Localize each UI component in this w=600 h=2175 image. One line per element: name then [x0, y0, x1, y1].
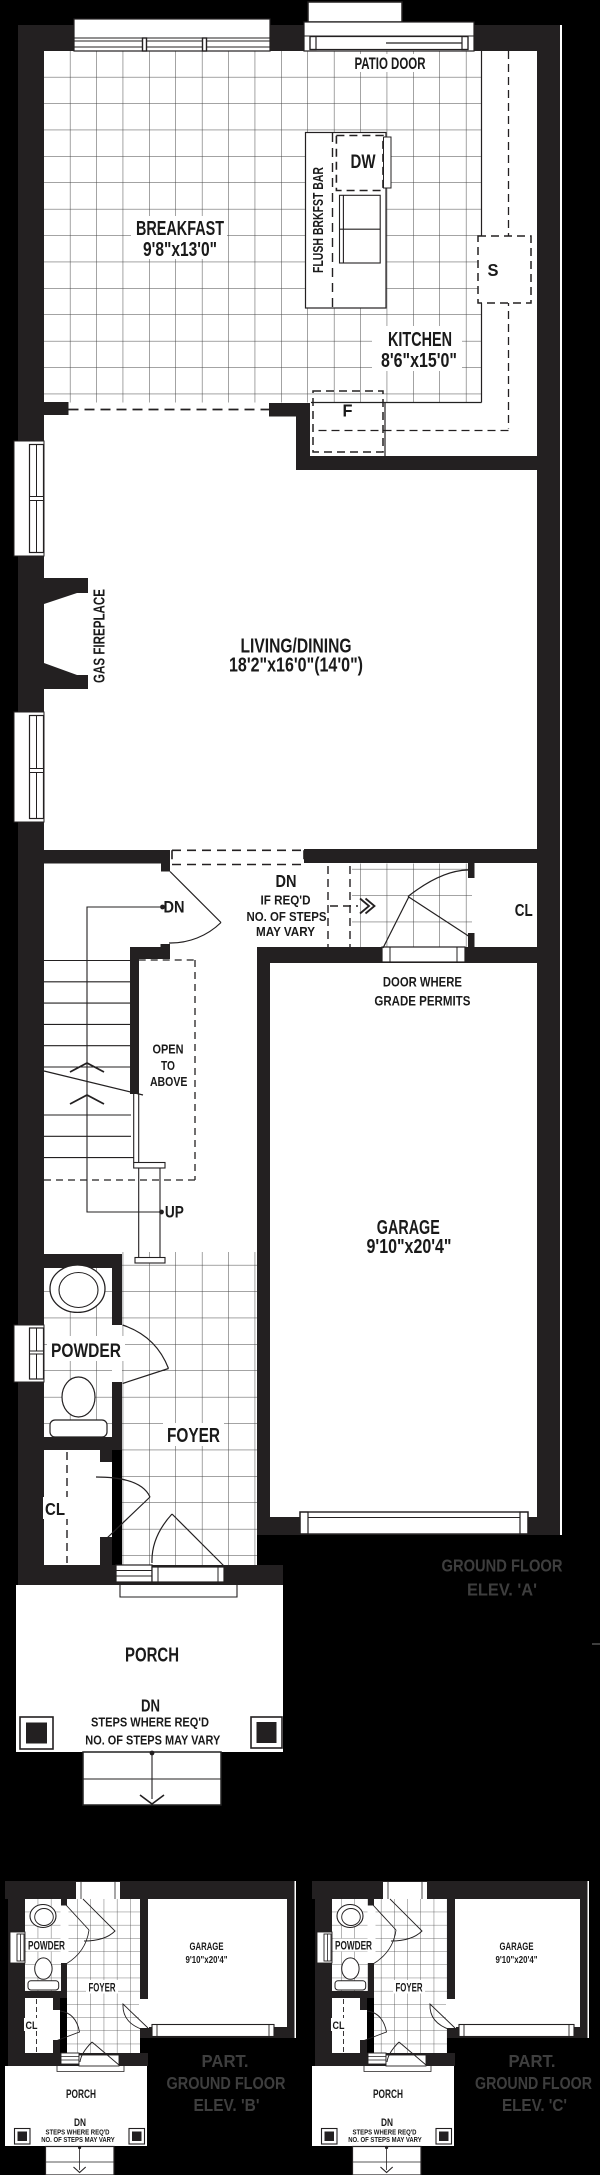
svg-text:9'10"x20'4": 9'10"x20'4"	[186, 1954, 228, 1966]
svg-text:ABOVE: ABOVE	[150, 1074, 188, 1089]
svg-text:GARAGE: GARAGE	[190, 1941, 224, 1953]
svg-text:9'10"x20'4": 9'10"x20'4"	[367, 1236, 452, 1258]
svg-text:9'8"x13'0": 9'8"x13'0"	[143, 239, 217, 261]
svg-text:STEPS WHERE REQ'D: STEPS WHERE REQ'D	[91, 1715, 209, 1730]
svg-text:CL: CL	[333, 2020, 345, 2032]
svg-text:DN: DN	[276, 871, 297, 891]
svg-text:POWDER: POWDER	[335, 1939, 372, 1953]
svg-text:DW: DW	[351, 152, 376, 173]
svg-text:18'2"x16'0"(14'0"): 18'2"x16'0"(14'0")	[229, 655, 363, 677]
svg-text:GRADE PERMITS: GRADE PERMITS	[374, 992, 470, 1008]
svg-text:ELEV. 'B': ELEV. 'B'	[194, 2095, 260, 2115]
svg-text:GROUND FLOOR: GROUND FLOOR	[475, 2073, 592, 2093]
svg-text:DOOR WHERE: DOOR WHERE	[383, 974, 462, 990]
svg-text:8'6"x15'0": 8'6"x15'0"	[381, 350, 457, 372]
svg-text:NO. OF STEPS MAY VARY: NO. OF STEPS MAY VARY	[41, 2135, 115, 2144]
svg-text:NO. OF STEPS MAY VARY: NO. OF STEPS MAY VARY	[348, 2135, 422, 2144]
svg-text:F: F	[343, 401, 353, 421]
svg-text:BREAKFAST: BREAKFAST	[136, 218, 224, 240]
svg-text:IF REQ'D: IF REQ'D	[261, 893, 311, 908]
svg-text:FLUSH BRKFST BAR: FLUSH BRKFST BAR	[310, 167, 327, 273]
svg-text:UP: UP	[165, 1204, 184, 1222]
svg-text:OPEN: OPEN	[153, 1042, 184, 1057]
svg-text:TO: TO	[161, 1058, 175, 1073]
svg-text:CL: CL	[45, 1499, 65, 1519]
svg-text:S: S	[488, 260, 499, 280]
svg-text:CL: CL	[26, 2020, 38, 2032]
svg-text:PART.: PART.	[509, 2051, 556, 2071]
svg-text:PART.: PART.	[202, 2051, 249, 2071]
svg-text:GARAGE: GARAGE	[500, 1941, 534, 1953]
svg-text:POWDER: POWDER	[28, 1939, 65, 1953]
svg-text:NO. OF STEPS: NO. OF STEPS	[247, 909, 327, 924]
svg-text:ELEV. 'A': ELEV. 'A'	[467, 1580, 537, 1600]
svg-text:DN: DN	[141, 1696, 160, 1716]
svg-text:GROUND FLOOR: GROUND FLOOR	[442, 1556, 563, 1576]
svg-text:PORCH: PORCH	[125, 1645, 179, 1667]
svg-text:GAS FIREPLACE: GAS FIREPLACE	[92, 589, 109, 683]
svg-text:POWDER: POWDER	[51, 1341, 121, 1362]
svg-text:PATIO DOOR: PATIO DOOR	[355, 55, 426, 73]
svg-text:KITCHEN: KITCHEN	[388, 329, 452, 351]
svg-text:PORCH: PORCH	[66, 2087, 96, 2101]
svg-text:PORCH: PORCH	[373, 2087, 403, 2101]
svg-text:FOYER: FOYER	[167, 1425, 220, 1447]
svg-text:FOYER: FOYER	[89, 1981, 116, 1995]
svg-text:FOYER: FOYER	[396, 1981, 423, 1995]
svg-text:9'10"x20'4": 9'10"x20'4"	[496, 1954, 538, 1966]
svg-text:GROUND FLOOR: GROUND FLOOR	[167, 2073, 286, 2093]
svg-text:ELEV. 'C': ELEV. 'C'	[502, 2095, 567, 2115]
svg-text:CL: CL	[515, 900, 533, 920]
svg-text:DN: DN	[164, 898, 185, 916]
svg-text:MAY VARY: MAY VARY	[256, 924, 315, 939]
svg-text:NO. OF STEPS MAY VARY: NO. OF STEPS MAY VARY	[85, 1732, 220, 1747]
